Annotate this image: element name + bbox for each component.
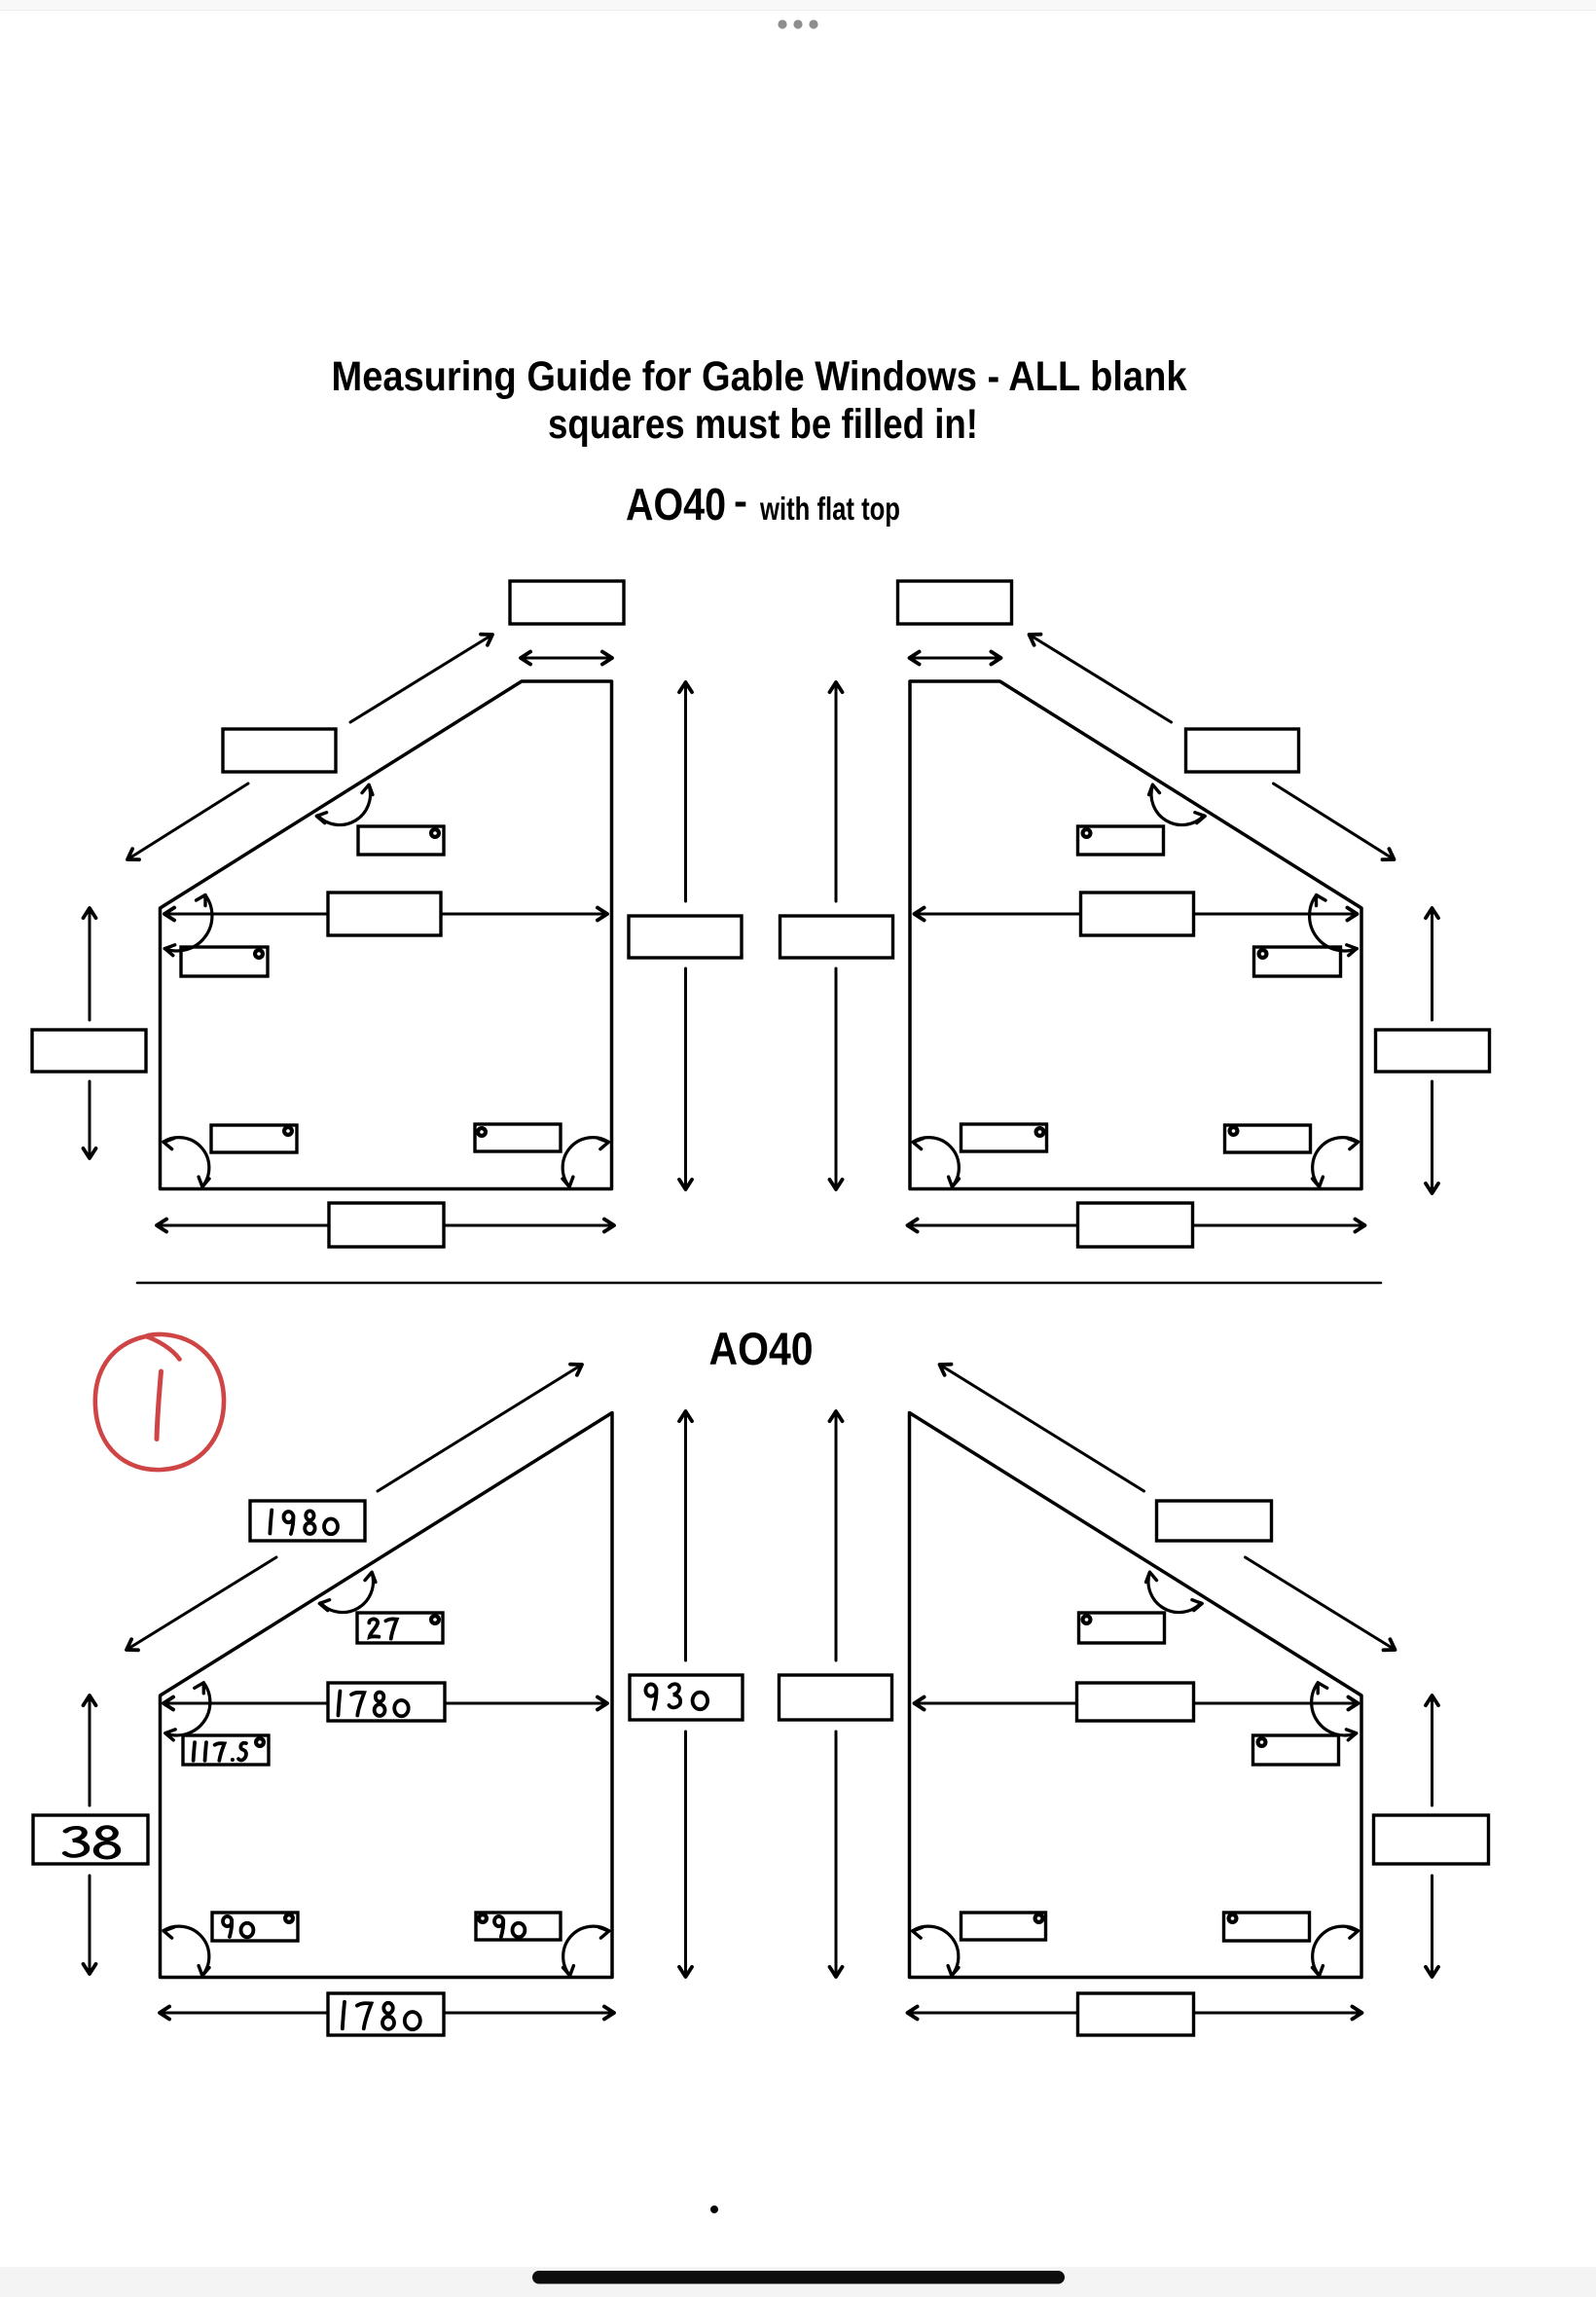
svg-text:Measuring Guide for Gable Wind: Measuring Guide for Gable Windows - ALL … xyxy=(332,353,1187,400)
svg-text:with flat top: with flat top xyxy=(759,491,900,527)
svg-text:AO40: AO40 xyxy=(709,1323,814,1374)
svg-text:-: - xyxy=(734,478,747,524)
svg-text:squares must be filled in!: squares must be filled in! xyxy=(548,401,978,448)
svg-text:AO40: AO40 xyxy=(626,479,726,529)
